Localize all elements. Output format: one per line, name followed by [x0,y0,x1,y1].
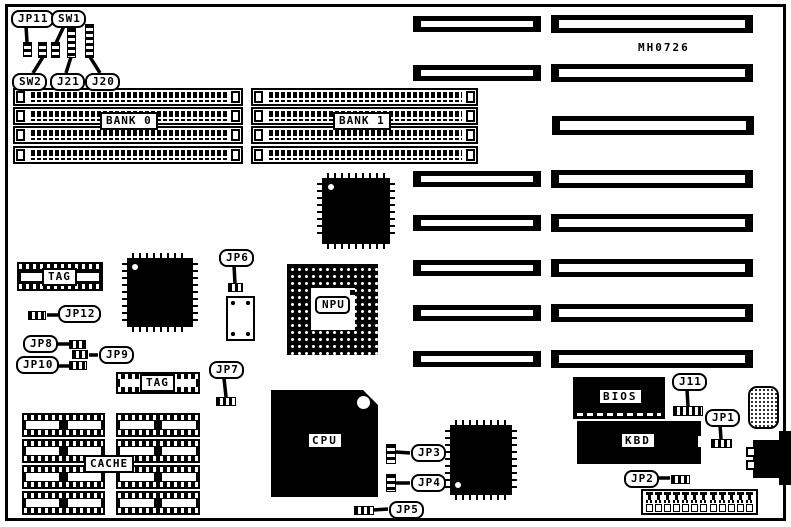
label-cpu: CPU [308,433,342,448]
label-cache: CACHE [84,455,134,473]
callout-jp8: JP8 [23,335,58,353]
callout-jp7: JP7 [209,361,244,379]
callout-jp6: JP6 [219,249,254,267]
label-kbd: KBD [621,433,655,448]
label-bank0: BANK 0 [100,112,158,130]
callout-j21: J21 [50,73,85,91]
callout-j11: J11 [672,373,707,391]
label-npu: NPU [315,296,350,314]
callout-jp3: JP3 [411,444,446,462]
label-tag1: TAG [42,268,77,286]
callout-jp10: JP10 [16,356,59,374]
callout-sw1: SW1 [51,10,86,28]
callout-jp2: JP2 [624,470,659,488]
label-tag2: TAG [140,374,175,392]
callout-jp12: JP12 [58,305,101,323]
callout-sw2: SW2 [12,73,47,91]
callout-jp1: JP1 [705,409,740,427]
callout-jp5: JP5 [389,501,424,519]
callout-jp11: JP11 [11,10,54,28]
motherboard-diagram: MH0726 BANK 0 BANK 1 TAG TAG [0,0,791,527]
callout-jp9: JP9 [99,346,134,364]
callout-jp4: JP4 [411,474,446,492]
label-bank1: BANK 1 [333,112,391,130]
label-bios: BIOS [599,389,642,404]
callout-j20: J20 [85,73,120,91]
